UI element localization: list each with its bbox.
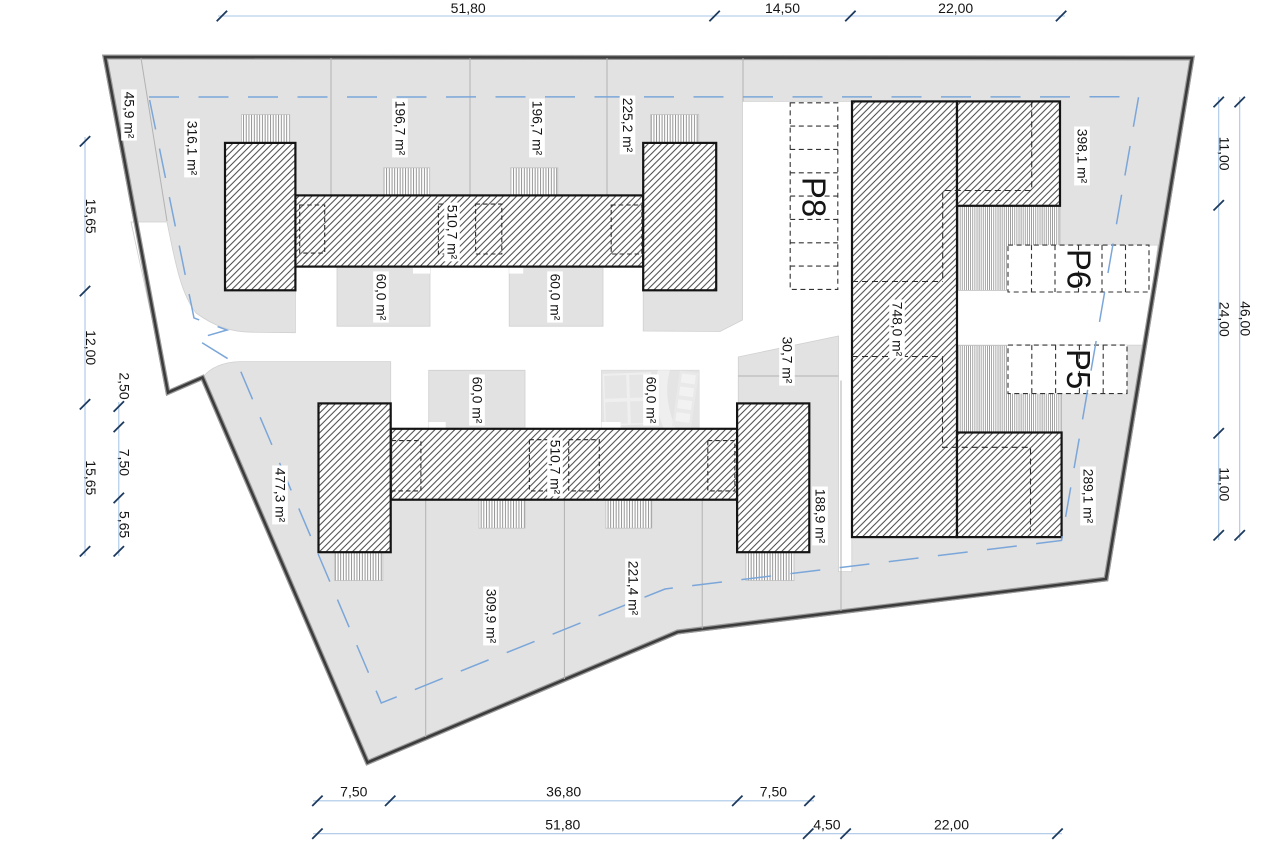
svg-text:60,0 m²: 60,0 m² — [470, 377, 485, 424]
svg-text:60,0 m²: 60,0 m² — [374, 274, 389, 321]
svg-text:22,00: 22,00 — [934, 817, 969, 833]
svg-text:188,9 m²: 188,9 m² — [813, 489, 828, 544]
svg-text:510,7 m²: 510,7 m² — [548, 440, 563, 495]
svg-text:398,1 m²: 398,1 m² — [1075, 129, 1090, 184]
svg-text:51,80: 51,80 — [545, 817, 580, 833]
svg-text:36,80: 36,80 — [546, 784, 581, 800]
svg-text:4,50: 4,50 — [813, 817, 840, 833]
svg-text:15,65: 15,65 — [83, 199, 99, 234]
svg-text:51,80: 51,80 — [451, 0, 486, 16]
svg-text:196,7 m²: 196,7 m² — [530, 101, 545, 156]
svg-text:24,00: 24,00 — [1217, 302, 1233, 337]
svg-text:5,65: 5,65 — [117, 511, 133, 538]
svg-text:12,00: 12,00 — [83, 330, 99, 365]
svg-text:7,50: 7,50 — [760, 784, 787, 800]
svg-text:510,7 m²: 510,7 m² — [445, 205, 460, 260]
svg-text:11,00: 11,00 — [1217, 467, 1233, 501]
svg-text:14,50: 14,50 — [765, 0, 800, 16]
svg-text:46,00: 46,00 — [1238, 301, 1254, 336]
svg-text:289,1 m²: 289,1 m² — [1081, 469, 1096, 524]
svg-text:60,0 m²: 60,0 m² — [548, 274, 563, 321]
svg-text:P6: P6 — [1061, 249, 1098, 289]
svg-text:477,3 m²: 477,3 m² — [273, 468, 288, 523]
svg-text:196,7 m²: 196,7 m² — [393, 101, 408, 156]
svg-text:225,2 m²: 225,2 m² — [620, 98, 635, 153]
svg-text:748,0 m²: 748,0 m² — [890, 302, 905, 357]
svg-text:P8: P8 — [796, 177, 833, 217]
svg-text:15,65: 15,65 — [83, 460, 99, 495]
svg-text:309,9 m²: 309,9 m² — [484, 589, 499, 644]
svg-text:45,9 m²: 45,9 m² — [122, 92, 137, 139]
svg-text:60,0 m²: 60,0 m² — [644, 377, 659, 424]
svg-text:2,50: 2,50 — [117, 372, 133, 399]
svg-text:221,4 m²: 221,4 m² — [626, 561, 641, 616]
svg-text:22,00: 22,00 — [938, 0, 973, 16]
svg-text:316,1 m²: 316,1 m² — [185, 121, 200, 176]
svg-text:11,00: 11,00 — [1217, 137, 1233, 171]
svg-text:7,50: 7,50 — [117, 449, 133, 476]
svg-text:30,7 m²: 30,7 m² — [780, 337, 795, 384]
svg-text:7,50: 7,50 — [340, 784, 367, 800]
